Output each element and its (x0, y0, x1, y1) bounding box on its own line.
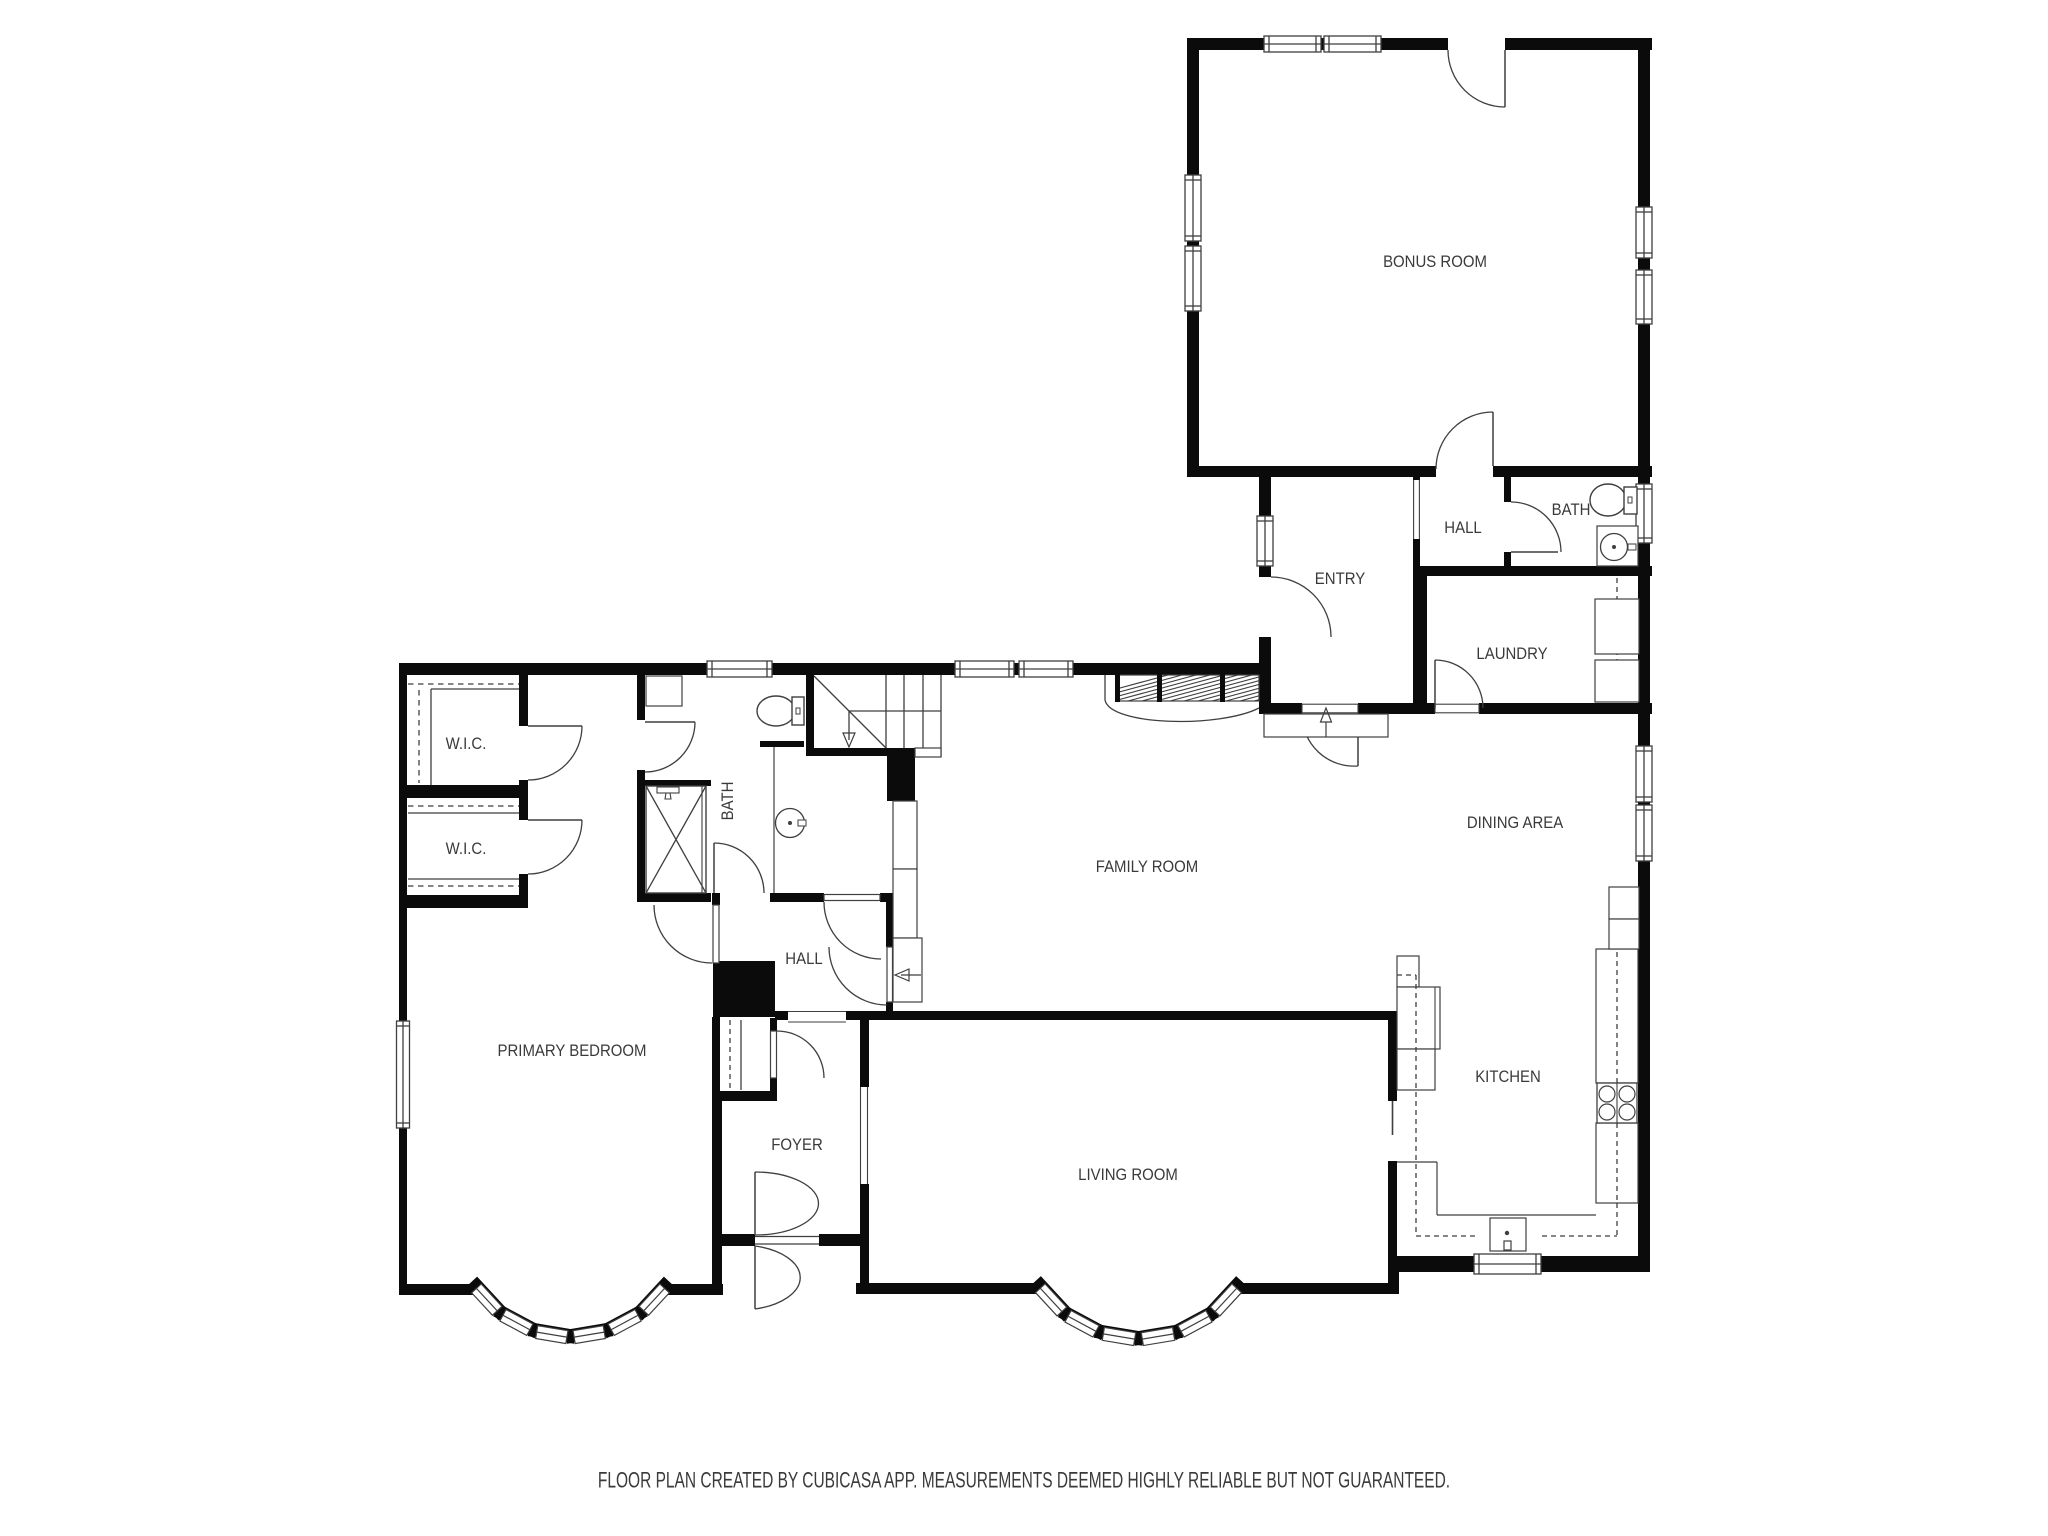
svg-text:BATH: BATH (719, 782, 737, 821)
svg-text:LAUNDRY: LAUNDRY (1476, 645, 1547, 663)
svg-text:W.I.C.: W.I.C. (446, 735, 487, 753)
svg-text:PRIMARY BEDROOM: PRIMARY BEDROOM (498, 1042, 647, 1060)
svg-text:BONUS ROOM: BONUS ROOM (1383, 253, 1487, 271)
svg-text:FAMILY ROOM: FAMILY ROOM (1096, 858, 1198, 876)
svg-text:BATH: BATH (1552, 501, 1591, 519)
svg-text:HALL: HALL (785, 950, 822, 968)
svg-text:ENTRY: ENTRY (1315, 570, 1366, 588)
svg-text:W.I.C.: W.I.C. (446, 840, 487, 858)
svg-text:FLOOR PLAN CREATED BY CUBICASA: FLOOR PLAN CREATED BY CUBICASA APP. MEAS… (598, 1469, 1450, 1493)
svg-text:FOYER: FOYER (771, 1136, 823, 1154)
svg-text:LIVING ROOM: LIVING ROOM (1078, 1166, 1178, 1184)
svg-text:KITCHEN: KITCHEN (1475, 1068, 1541, 1086)
svg-text:DINING AREA: DINING AREA (1467, 814, 1564, 832)
svg-text:HALL: HALL (1444, 519, 1481, 537)
